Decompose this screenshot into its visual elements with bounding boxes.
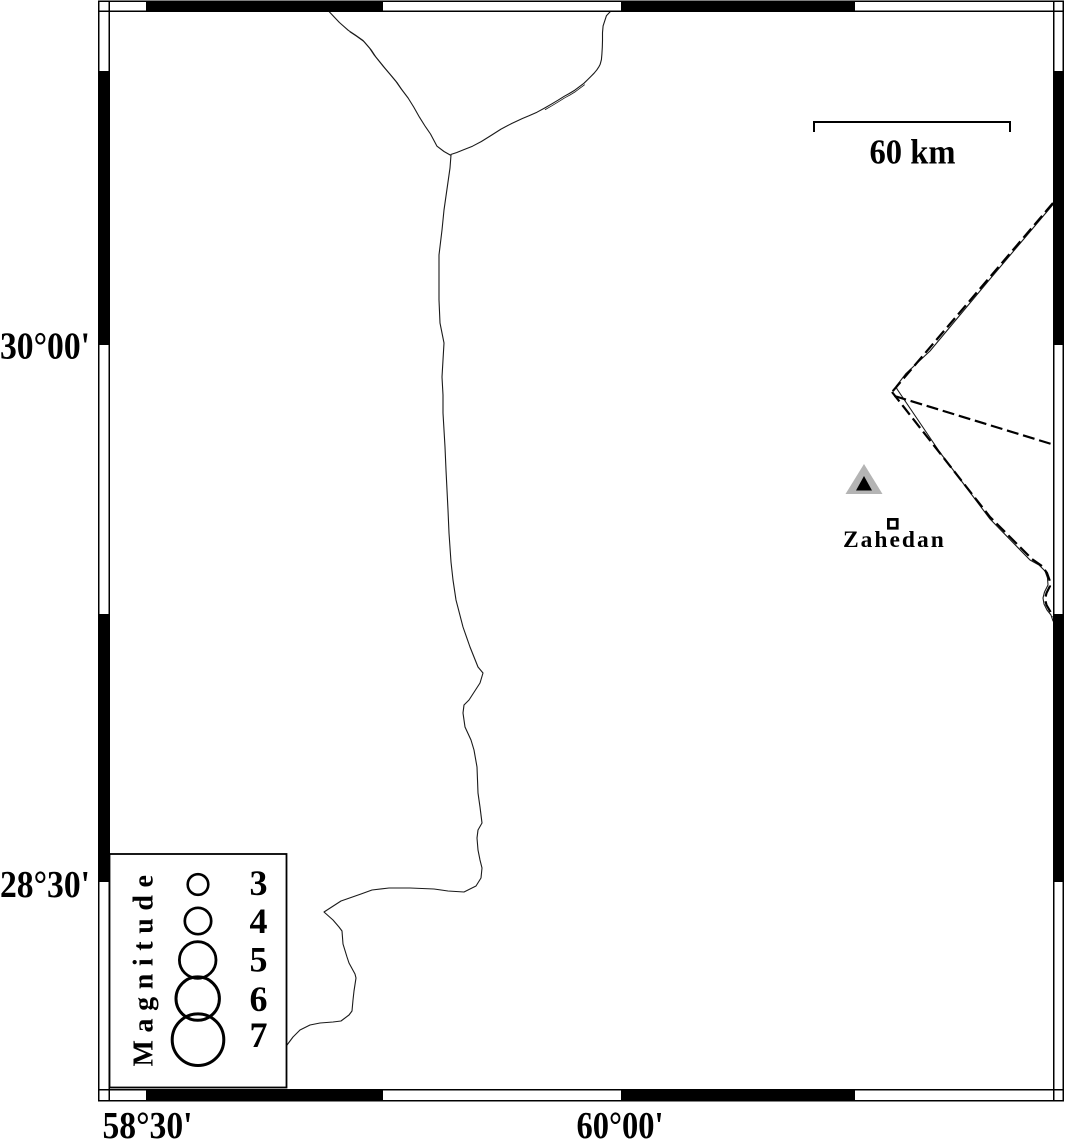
svg-text:28°30': 28°30' [0, 864, 90, 906]
svg-text:30°00': 30°00' [0, 326, 90, 368]
svg-text:3: 3 [250, 863, 268, 903]
svg-text:Magnitude: Magnitude [128, 867, 159, 1066]
svg-text:58°30': 58°30' [103, 1105, 193, 1139]
svg-text:4: 4 [250, 901, 268, 941]
svg-text:Zahedan: Zahedan [843, 527, 946, 553]
svg-text:5: 5 [250, 940, 268, 980]
svg-text:7: 7 [250, 1015, 268, 1055]
svg-text:60 km: 60 km [870, 134, 956, 172]
svg-text:6: 6 [250, 979, 268, 1019]
svg-text:60°00': 60°00' [577, 1105, 664, 1139]
